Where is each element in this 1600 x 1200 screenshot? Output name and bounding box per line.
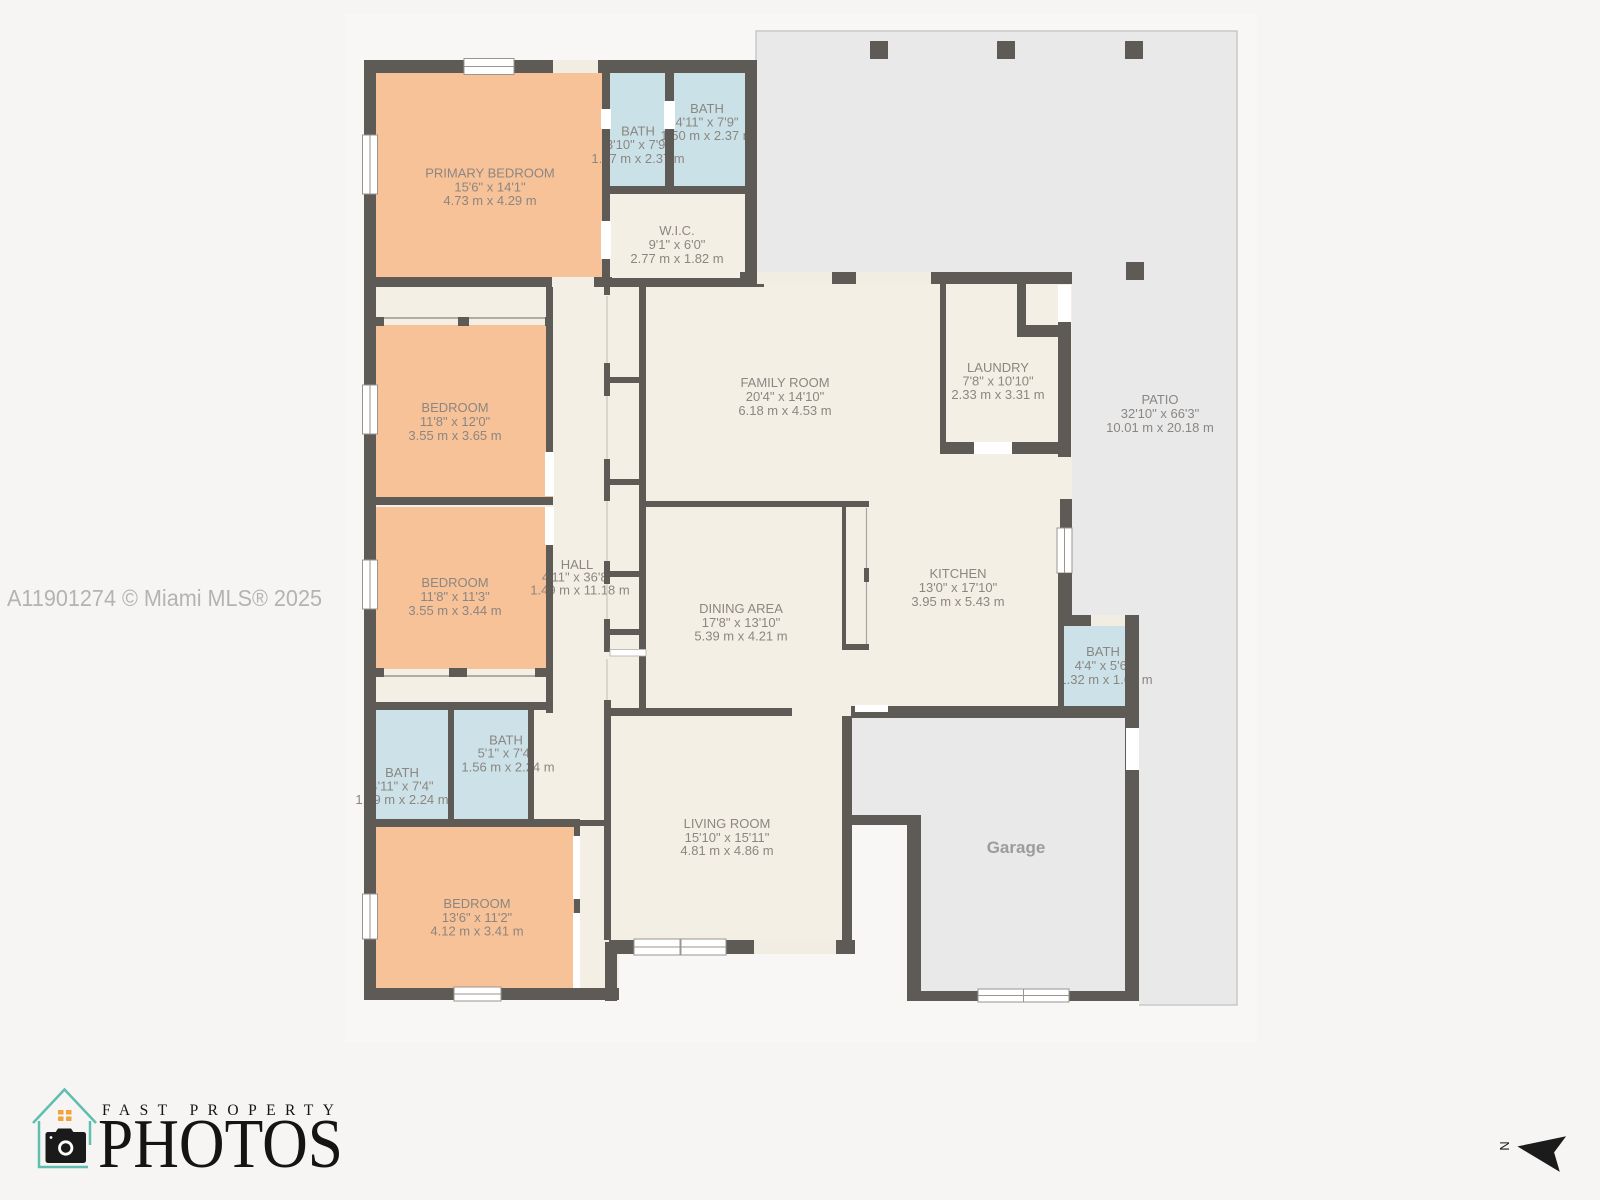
svg-text:20'4" x 14'10": 20'4" x 14'10"	[746, 389, 825, 404]
svg-text:10.01 m x 20.18 m: 10.01 m x 20.18 m	[1106, 420, 1214, 435]
svg-text:5'1" x 7'4": 5'1" x 7'4"	[478, 746, 535, 761]
svg-text:1.49 m x 11.18 m: 1.49 m x 11.18 m	[530, 583, 629, 598]
svg-text:5.39 m x 4.21 m: 5.39 m x 4.21 m	[694, 629, 787, 644]
svg-text:N: N	[1497, 1141, 1512, 1150]
svg-text:11'8" x 11'3": 11'8" x 11'3"	[420, 589, 490, 604]
svg-text:PHOTOS: PHOTOS	[98, 1106, 343, 1183]
svg-text:4.73 m x 4.29 m: 4.73 m x 4.29 m	[443, 193, 536, 208]
svg-text:BEDROOM: BEDROOM	[421, 400, 488, 415]
svg-text:FAMILY ROOM: FAMILY ROOM	[740, 375, 829, 390]
svg-text:A11901274 © Miami MLS® 2025: A11901274 © Miami MLS® 2025	[7, 585, 322, 611]
svg-text:BATH: BATH	[1086, 644, 1120, 659]
svg-text:1.56 m x 2.24 m: 1.56 m x 2.24 m	[461, 760, 554, 775]
svg-text:11'8" x 12'0": 11'8" x 12'0"	[420, 414, 491, 429]
svg-text:32'10" x 66'3": 32'10" x 66'3"	[1121, 406, 1200, 421]
svg-text:DINING AREA: DINING AREA	[699, 601, 783, 616]
svg-text:BEDROOM: BEDROOM	[421, 575, 488, 590]
svg-text:1.50 m x 2.37 m: 1.50 m x 2.37 m	[660, 128, 753, 143]
svg-text:4'4" x 5'6": 4'4" x 5'6"	[1075, 658, 1132, 673]
svg-text:PATIO: PATIO	[1141, 392, 1178, 407]
svg-text:3.55 m x 3.44 m: 3.55 m x 3.44 m	[408, 603, 501, 618]
svg-text:4.12 m x 3.41 m: 4.12 m x 3.41 m	[430, 924, 523, 939]
svg-text:2.77 m x 1.82 m: 2.77 m x 1.82 m	[630, 251, 723, 266]
svg-text:W.I.C.: W.I.C.	[659, 223, 694, 238]
svg-text:KITCHEN: KITCHEN	[929, 566, 986, 581]
svg-text:9'1" x 6'0": 9'1" x 6'0"	[649, 237, 706, 252]
svg-text:Garage: Garage	[987, 838, 1046, 857]
svg-text:13'0" x 17'10": 13'0" x 17'10"	[919, 580, 998, 595]
svg-text:PRIMARY BEDROOM: PRIMARY BEDROOM	[425, 166, 555, 181]
svg-text:4.81 m x 4.86 m: 4.81 m x 4.86 m	[680, 843, 773, 858]
svg-text:LIVING ROOM: LIVING ROOM	[684, 816, 771, 831]
svg-text:BEDROOM: BEDROOM	[443, 896, 510, 911]
svg-text:3.95 m x 5.43 m: 3.95 m x 5.43 m	[911, 594, 1004, 609]
svg-text:2.33 m x 3.31 m: 2.33 m x 3.31 m	[951, 387, 1044, 402]
svg-text:6.18 m x 4.53 m: 6.18 m x 4.53 m	[738, 403, 831, 418]
svg-text:3.55 m x 3.65 m: 3.55 m x 3.65 m	[408, 428, 501, 443]
